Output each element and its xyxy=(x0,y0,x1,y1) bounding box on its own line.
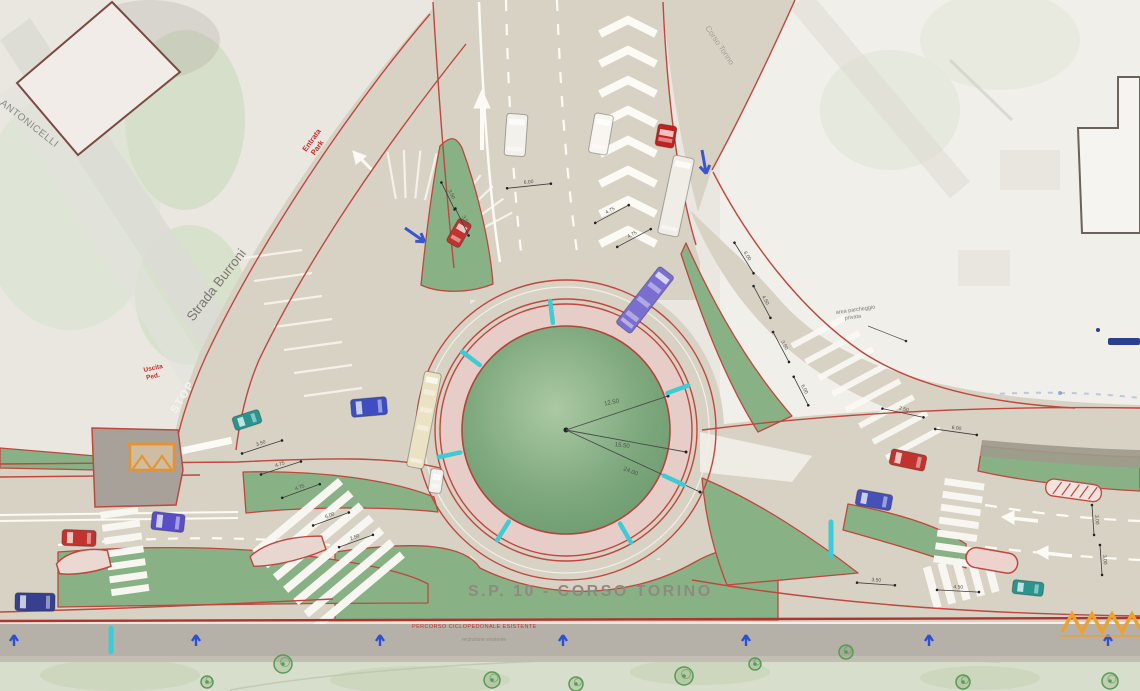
tree-icon xyxy=(1102,673,1118,689)
tree-icon xyxy=(569,677,583,691)
dimension-label: 3.00 xyxy=(1093,515,1100,525)
main-road-label: S.P. 10 - CORSO TORINO xyxy=(468,583,713,600)
tree-icon xyxy=(956,675,970,689)
vehicle-body xyxy=(1012,579,1044,596)
windshield xyxy=(432,474,441,481)
windshield xyxy=(20,595,26,608)
car-vehicle xyxy=(62,529,97,546)
van-vehicle xyxy=(350,396,387,417)
tree-icon xyxy=(749,658,761,670)
faded-structure xyxy=(958,250,1010,286)
cycle-path-note: PERCORSO CICLOPEDONALE ESISTENTE xyxy=(412,624,537,630)
sidewalk-edge xyxy=(0,656,1140,662)
vehicle-body xyxy=(428,468,444,494)
tree-icon xyxy=(484,672,500,688)
sidewalk-band xyxy=(0,624,1140,658)
tree-icon xyxy=(675,667,693,685)
truck-cab-vehicle xyxy=(655,124,678,149)
van-vehicle xyxy=(504,113,528,156)
tree-trunk xyxy=(574,682,578,686)
dim-point xyxy=(685,451,688,454)
shelter-outline xyxy=(130,444,174,470)
dimension-label: 3.50 xyxy=(871,577,881,584)
utility-node xyxy=(1058,391,1062,395)
windshield xyxy=(355,401,362,414)
vegetation xyxy=(920,666,1040,690)
site-plan-svg: 3.504.754.756.002.506.004.754.753.503.50… xyxy=(0,0,1140,691)
legend-dot xyxy=(1096,328,1100,332)
tree-trunk xyxy=(844,650,848,654)
faded-structure xyxy=(1000,150,1060,190)
dim-point xyxy=(699,491,702,494)
tree-trunk xyxy=(961,680,965,684)
note-leader-dot xyxy=(905,340,908,343)
fence-note: recinzione esistente xyxy=(462,637,506,643)
windshield xyxy=(1017,582,1024,592)
bus-shelter-icon xyxy=(128,444,176,470)
car-vehicle xyxy=(428,468,444,494)
car-vehicle xyxy=(1012,579,1044,596)
windshield xyxy=(509,118,525,125)
tree-trunk xyxy=(281,662,285,666)
roundabout-site-plan: 3.504.754.756.002.506.004.754.753.503.50… xyxy=(0,0,1140,691)
tree-trunk xyxy=(490,678,494,682)
tree-trunk xyxy=(1108,679,1112,683)
rear-window xyxy=(46,596,50,609)
van-vehicle xyxy=(151,511,186,532)
dimension-label: 6.00 xyxy=(523,179,534,186)
south-sidewalk xyxy=(0,618,1140,662)
tree-icon xyxy=(839,645,853,659)
vegetation xyxy=(40,659,200,691)
vehicle-body xyxy=(62,529,97,546)
tree-icon xyxy=(201,676,213,688)
van-vehicle xyxy=(15,593,55,612)
tree-icon xyxy=(274,655,292,673)
rear-window xyxy=(87,533,91,544)
vehicle-body xyxy=(350,396,387,417)
legend-bar xyxy=(1108,338,1140,345)
dimension-label: 3.00 xyxy=(1101,555,1108,565)
windshield xyxy=(67,532,73,543)
tree-trunk xyxy=(753,662,757,666)
cyan-tick xyxy=(550,301,553,323)
tree-trunk xyxy=(205,680,209,684)
dimension-label: 4.50 xyxy=(953,584,963,591)
vehicle-body xyxy=(151,511,186,532)
tree-trunk xyxy=(682,674,686,678)
